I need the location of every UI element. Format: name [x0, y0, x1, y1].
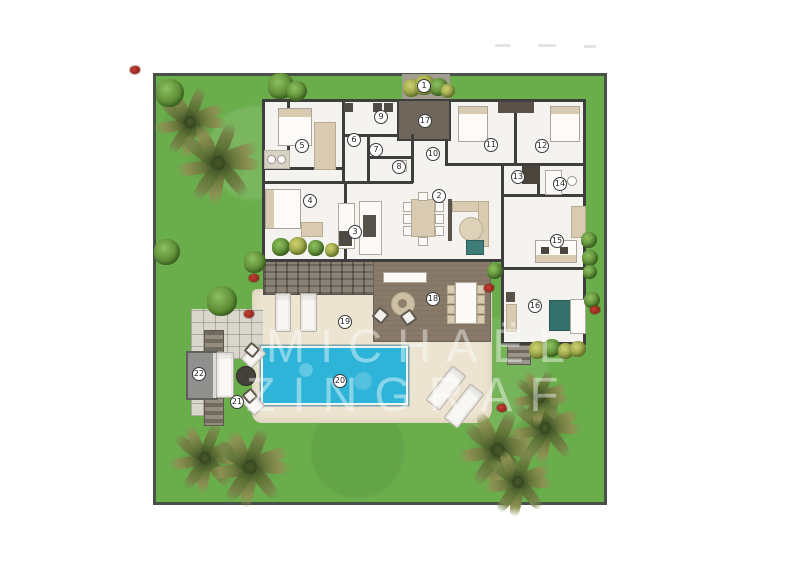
pergola-deck [263, 257, 375, 295]
wall [342, 134, 398, 137]
dresser [506, 304, 517, 332]
laundry-appliance [384, 103, 393, 112]
entrance-courtyard [402, 74, 450, 101]
palm-shadow [184, 140, 251, 186]
deck-chair [447, 295, 455, 304]
teal-rug-room16 [549, 300, 571, 331]
dining-chair [403, 214, 412, 224]
wall [503, 194, 584, 197]
wall [367, 134, 370, 183]
sink [267, 155, 276, 164]
sun-lounger [300, 293, 317, 332]
deck-chair [477, 295, 485, 304]
palm-shadow [218, 445, 282, 489]
wall [411, 134, 414, 183]
teal-pouf [466, 240, 484, 255]
wall [263, 181, 413, 184]
deck-chair [447, 315, 455, 324]
bed-cushion [560, 247, 568, 254]
wardrobe-room15 [571, 206, 586, 238]
deck-chair [477, 315, 485, 324]
deck-chair [447, 285, 455, 294]
dining-chair [403, 202, 412, 212]
wall [342, 100, 345, 184]
scan-smudge [584, 45, 596, 48]
bed-cushion [541, 247, 549, 254]
dining-chair [418, 237, 428, 246]
pool-house [186, 351, 218, 400]
dining-chair [418, 192, 428, 201]
wardrobe-room5 [314, 122, 336, 170]
outdoor-sofa [216, 352, 234, 398]
scan-smudge [538, 44, 556, 47]
room-17-dark [397, 99, 451, 141]
wall [503, 267, 584, 270]
dining-chair [435, 226, 444, 236]
bed-room11 [458, 106, 488, 142]
terrace-steps [507, 342, 531, 365]
swimming-pool [261, 346, 408, 405]
pouf [398, 299, 407, 308]
floor-plan-canvas: 12345678910111213141516171819202122 MICH… [0, 0, 800, 580]
deck-chair [477, 305, 485, 314]
bath-fixture [344, 103, 353, 112]
sink [277, 155, 286, 164]
deck-chair [447, 305, 455, 314]
palm-shadow [491, 463, 545, 500]
sun-lounger [275, 293, 291, 332]
dining-chair [435, 214, 444, 224]
dining-chair [403, 226, 412, 236]
closet-row [498, 102, 534, 113]
deck-console [383, 272, 427, 283]
sink [567, 176, 577, 186]
deck-dining-table [455, 282, 477, 324]
palm-shadow [516, 408, 574, 448]
laundry-appliance [373, 103, 382, 112]
corridor-closet [522, 166, 540, 184]
closet-room4 [301, 222, 323, 237]
scan-smudge [495, 44, 511, 47]
wall [367, 156, 413, 159]
kitchen-appliance [339, 231, 352, 246]
dining-table [411, 199, 435, 237]
bed-room12 [550, 106, 580, 142]
toilet [397, 160, 407, 172]
round-table [236, 366, 256, 386]
red-flower-planter [130, 66, 140, 74]
dining-chair [435, 202, 444, 212]
kitchen-stove [363, 215, 376, 237]
bathtub [545, 170, 562, 195]
round-armchair [459, 217, 483, 241]
bed-room5 [278, 108, 312, 146]
bed-room4 [265, 189, 301, 229]
palm-shadow [161, 102, 219, 142]
bed-room16 [570, 299, 586, 334]
dresser [506, 292, 515, 302]
deck-chair [477, 285, 485, 294]
